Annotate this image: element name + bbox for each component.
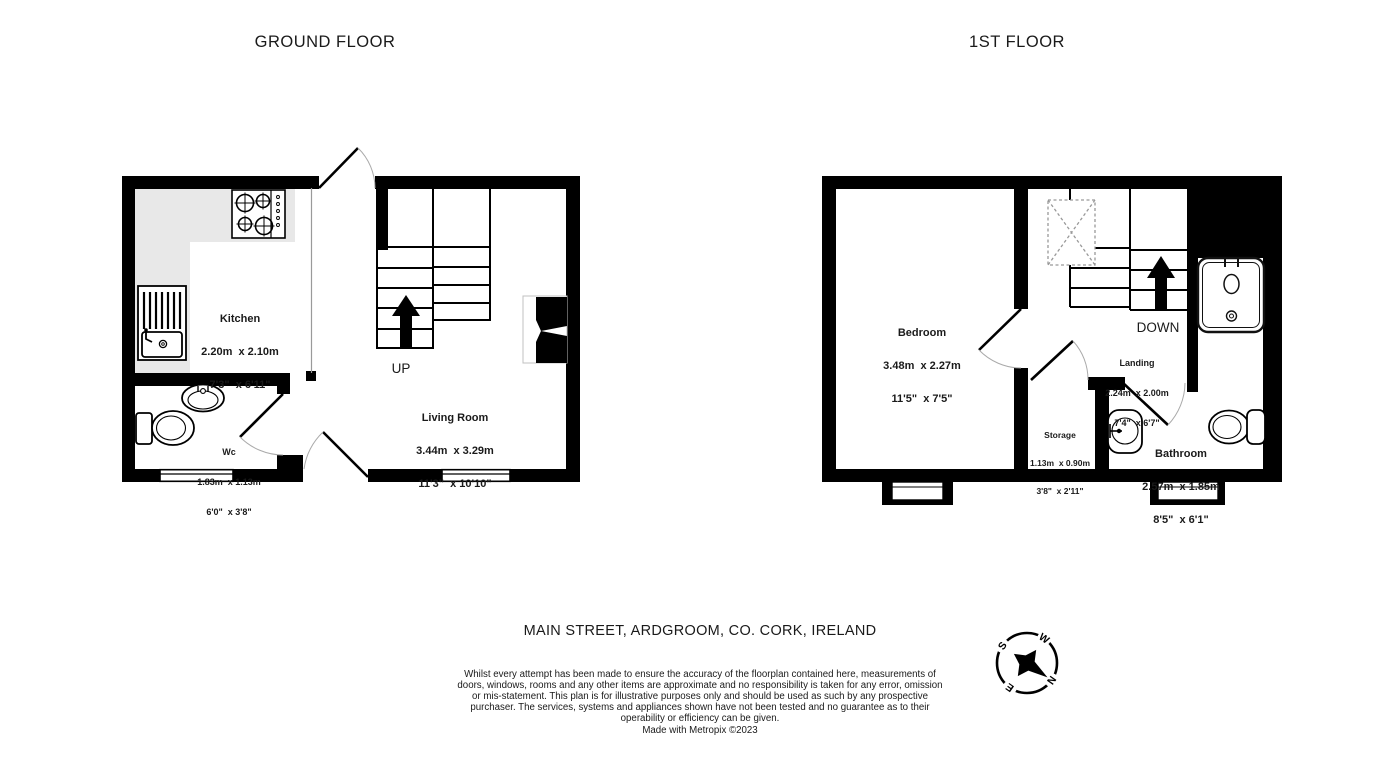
bedroom-label: Bedroom 3.48m x 2.27m 11'5" x 7'5" [883,306,961,416]
stair-void-icon [1048,200,1095,265]
compass-rose-icon: N E S W [995,631,1058,695]
room-name: Living Room [416,413,494,424]
ground-floor-plan [122,148,580,482]
kitchen-sink-icon [138,286,186,360]
room-dim-imperial: 3'8" x 2'11" [1030,487,1090,496]
room-name: Storage [1030,431,1090,440]
room-dim-metric: 1.13m x 0.90m [1030,459,1090,468]
room-dim-metric: 2.24m x 2.00m [1105,388,1169,398]
room-dim-imperial: 7'3" x 6'11" [201,380,279,391]
entrance-door-top [319,148,375,188]
kitchen-label: Kitchen 2.20m x 2.10m 7'3" x 6'11" [201,292,279,402]
room-dim-imperial: 8'5" x 6'1" [1142,515,1220,526]
room-name: Bedroom [883,328,961,339]
room-dim-metric: 1.83m x 1.13m [197,477,261,487]
room-name: Wc [197,447,261,457]
up-arrow-icon [392,295,420,348]
room-dim-imperial: 11'3" x 10'10" [416,479,494,490]
storage-label: Storage 1.13m x 0.90m 3'8" x 2'11" [1030,413,1090,505]
staircase-up [377,189,490,348]
living-room-label: Living Room 3.44m x 3.29m 11'3" x 10'10" [416,391,494,501]
landing-label: Landing 2.24m x 2.00m 7'4" x 6'7" [1105,338,1169,438]
bedroom-door [979,309,1021,368]
property-address: MAIN STREET, ARDGROOM, CO. CORK, IRELAND [0,623,1400,639]
disclaimer-block: Whilst every attempt has been made to en… [452,670,948,736]
wc-toilet-icon [136,411,194,445]
room-dim-imperial: 11'5" x 7'5" [883,394,961,405]
up-label: UP [392,361,411,376]
room-dim-imperial: 6'0" x 3'8" [197,507,261,517]
room-dim-metric: 2.20m x 2.10m [201,347,279,358]
room-dim-metric: 2.57m x 1.85m [1142,482,1220,493]
floorplan-page: { "floors": [ { "title": "GROUND FLOOR",… [0,0,1400,774]
room-name: Kitchen [201,314,279,325]
room-dim-metric: 3.44m x 3.29m [416,446,494,457]
bathroom-label: Bathroom 2.57m x 1.85m 8'5" x 6'1" [1142,427,1220,537]
metropix-credit: Made with Metropix ©2023 [452,726,948,737]
room-dim-metric: 3.48m x 2.27m [883,361,961,372]
bathtub-icon [1198,258,1264,332]
ground-floor-title: GROUND FLOOR [255,33,396,52]
bedroom-window [882,469,953,505]
storage-door [1031,341,1088,380]
down-arrow-icon [1147,256,1175,310]
down-label: DOWN [1137,320,1180,335]
room-name: Bathroom [1142,449,1220,460]
front-door [304,432,368,477]
fireplace-icon [523,296,567,363]
first-floor-title: 1ST FLOOR [969,33,1065,52]
disclaimer-text: Whilst every attempt has been made to en… [457,669,942,724]
room-name: Landing [1105,358,1169,368]
wc-label: Wc 1.83m x 1.13m 6'0" x 3'8" [197,427,261,527]
stove-icon [232,190,285,238]
